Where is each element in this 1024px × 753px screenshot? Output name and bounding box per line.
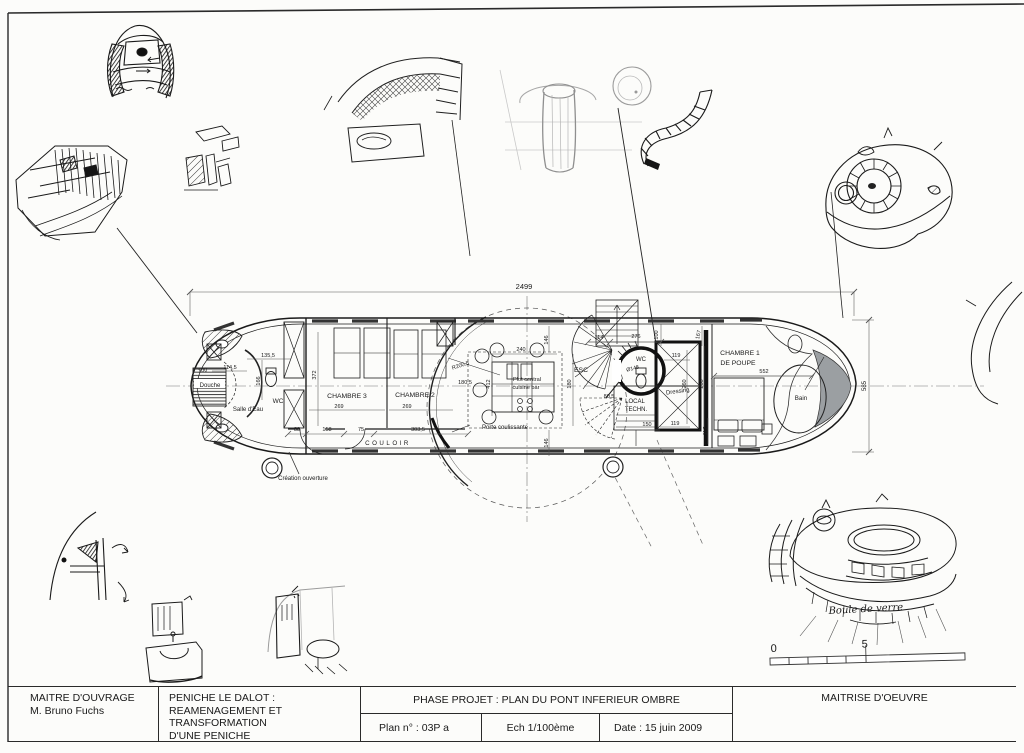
project-line1: PENICHE LE DALOT : [169, 692, 360, 705]
svg-text:114: 114 [595, 335, 604, 341]
sheet: Boule de verre [0, 0, 1024, 753]
svg-text:Création ouverture: Création ouverture [278, 476, 328, 482]
svg-text:CHAMBRE 2: CHAMBRE 2 [395, 392, 435, 399]
axis-lines [166, 296, 984, 522]
svg-text:146: 146 [544, 335, 550, 344]
drawing-scale: Ech 1/100ème [481, 714, 599, 741]
svg-text:119: 119 [671, 421, 680, 427]
svg-text:LOCAL: LOCAL [625, 399, 645, 405]
kitchen-island [448, 343, 562, 432]
svg-text:Bain: Bain [795, 395, 808, 402]
svg-text:276: 276 [631, 334, 640, 340]
project-cell: PENICHE LE DALOT : REAMENAGEMENT ET TRAN… [158, 687, 360, 741]
svg-text:Salle d'Eau: Salle d'Eau [233, 407, 263, 413]
client-label: MAITRE D'OUVRAGE [30, 692, 158, 705]
svg-text:412: 412 [486, 379, 492, 388]
sketch-curved-stairs [324, 58, 462, 162]
sliding-door-leaf [432, 418, 449, 448]
sheet-border [8, 4, 1024, 742]
svg-text:Ø148: Ø148 [626, 365, 640, 374]
svg-text:585: 585 [862, 380, 868, 391]
svg-text:WC: WC [273, 398, 284, 405]
svg-text:2499: 2499 [516, 282, 533, 291]
svg-text:180: 180 [567, 379, 573, 388]
svg-text:Porte coulissante: Porte coulissante [482, 425, 529, 431]
scale-five: 5 [861, 638, 867, 650]
phase-sub-row: Plan n° : 03P a Ech 1/100ème Date : 15 j… [361, 714, 732, 741]
title-block: MAITRE D'OUVRAGE M. Bruno Fuchs PENICHE … [8, 686, 1016, 742]
sketch-bow-interior [16, 146, 127, 240]
sketch-stern-study [826, 128, 952, 248]
svg-text:80,5: 80,5 [604, 394, 615, 400]
drawing-date: Date : 15 juin 2009 [599, 714, 733, 741]
sketch-furniture-studies [184, 126, 239, 190]
svg-text:372: 372 [312, 370, 318, 379]
svg-text:119: 119 [672, 353, 681, 359]
svg-text:117: 117 [703, 427, 709, 436]
phase-title: PHASE PROJET : PLAN DU PONT INFERIEUR OM… [361, 687, 732, 714]
moe-label: MAITRISE D'OEUVRE [821, 692, 927, 741]
sketch-stern-deck [769, 494, 956, 645]
phase-cell: PHASE PROJET : PLAN DU PONT INFERIEUR OM… [360, 687, 732, 741]
sketch-margin-curve [966, 282, 1022, 404]
barge-plan: 2499 585 Douche Salle d'Eau WC 100 114,5… [166, 282, 984, 522]
svg-text:135,5: 135,5 [261, 353, 275, 359]
leader-lines [117, 108, 843, 548]
svg-text:R200,5: R200,5 [451, 360, 470, 371]
sketch-bath-corner [146, 596, 202, 682]
svg-text:COULOIR: COULOIR [365, 440, 411, 447]
svg-text:552: 552 [759, 369, 768, 375]
svg-text:260: 260 [682, 379, 688, 388]
stern-rooms [712, 324, 851, 450]
svg-text:ESC: ESC [574, 367, 588, 374]
svg-text:303,5: 303,5 [411, 427, 425, 433]
svg-text:150: 150 [642, 422, 651, 428]
project-line2: REAMENAGEMENT ET TRANSFORMATION [169, 705, 360, 730]
svg-text:CHAMBRE 3: CHAMBRE 3 [327, 393, 367, 400]
svg-text:Douche: Douche [200, 383, 221, 389]
svg-text:114,5: 114,5 [223, 365, 236, 371]
svg-text:TECHN.: TECHN. [625, 407, 648, 413]
svg-text:166: 166 [256, 376, 262, 385]
sketch-bow-section [50, 512, 129, 602]
svg-text:240: 240 [516, 347, 525, 353]
bollards [262, 457, 623, 478]
sketch-bow-front [108, 25, 174, 98]
svg-text:88: 88 [294, 427, 300, 433]
plan-number: Plan n° : 03P a [361, 714, 481, 741]
scale-zero: 0 [771, 643, 777, 655]
svg-text:Plot central: Plot central [513, 377, 541, 383]
sketch-spiral-ramp [641, 90, 712, 170]
svg-text:75: 75 [358, 427, 364, 433]
svg-text:DE POUPE: DE POUPE [720, 360, 756, 367]
drawing-canvas: Boule de verre [0, 0, 1024, 753]
client-cell: MAITRE D'OUVRAGE M. Bruno Fuchs [8, 687, 158, 741]
svg-text:CHAMBRE 1: CHAMBRE 1 [720, 350, 760, 357]
client-name: M. Bruno Fuchs [30, 705, 158, 718]
sketch-wc-cylinder [500, 67, 651, 172]
moe-cell: MAITRISE D'OEUVRE [732, 687, 1016, 741]
scale-bar: 0 5 [770, 636, 966, 665]
svg-text:100: 100 [654, 330, 660, 339]
project-line3: D'UNE PENICHE [169, 730, 360, 743]
svg-text:cuisine bar: cuisine bar [512, 385, 539, 391]
svg-text:WC: WC [636, 357, 647, 363]
svg-text:269: 269 [402, 404, 411, 410]
sketch-shower-room [268, 586, 347, 674]
curved-glass-wall [429, 317, 486, 486]
svg-text:268: 268 [699, 379, 705, 388]
svg-text:180,5: 180,5 [458, 380, 472, 386]
svg-text:269: 269 [334, 404, 343, 410]
svg-text:146: 146 [544, 438, 550, 447]
svg-text:158: 158 [322, 427, 331, 433]
